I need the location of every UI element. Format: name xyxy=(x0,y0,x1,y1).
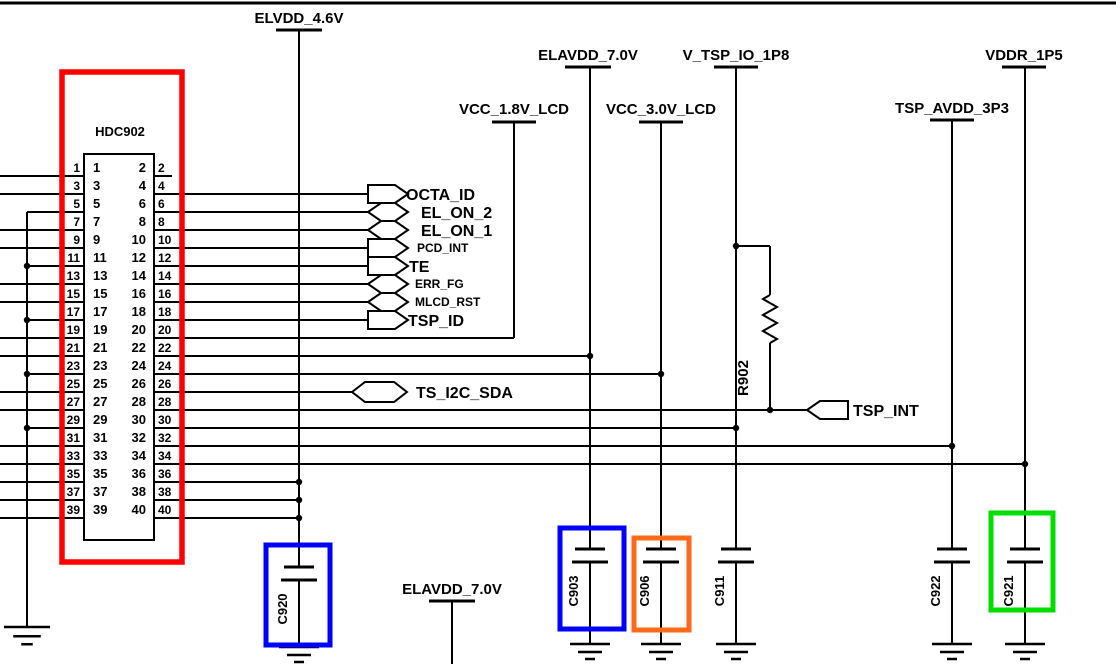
pin-number-outer-left: 3 xyxy=(73,179,80,193)
pin-number-inner-left: 27 xyxy=(93,394,107,409)
pin-number-outer-left: 19 xyxy=(67,323,81,337)
signal-label: PCD_INT xyxy=(417,241,469,255)
pin-number-outer-left: 1 xyxy=(73,161,80,175)
pin-number-outer-left: 9 xyxy=(73,233,80,247)
pin-number-outer-right: 26 xyxy=(158,377,172,391)
power-net-label: VCC_3.0V_LCD xyxy=(606,101,716,118)
pin-number-inner-right: 38 xyxy=(132,484,146,499)
pin-number-outer-right: 30 xyxy=(158,413,172,427)
resistor-label: R902 xyxy=(735,360,752,396)
pin-number-inner-left: 19 xyxy=(93,322,107,337)
pin-number-outer-right: 36 xyxy=(158,467,172,481)
power-net-label: ELAVDD_7.0V xyxy=(402,581,502,598)
capacitor-label: C922 xyxy=(928,575,943,606)
capacitor-label: C921 xyxy=(1001,575,1016,606)
pin-number-inner-right: 32 xyxy=(132,430,146,445)
pin-number-outer-left: 29 xyxy=(67,413,81,427)
junction-dot xyxy=(24,263,30,269)
pin-number-inner-right: 24 xyxy=(132,358,147,373)
pin-number-inner-right: 30 xyxy=(132,412,146,427)
junction-dot xyxy=(587,353,593,359)
capacitor-label: C903 xyxy=(566,575,581,606)
pin-number-outer-right: 34 xyxy=(158,449,172,463)
pin-number-inner-left: 3 xyxy=(93,178,100,193)
junction-dot xyxy=(949,443,955,449)
junction-dot xyxy=(767,407,773,413)
pin-number-inner-left: 1 xyxy=(93,160,100,175)
pin-number-inner-left: 13 xyxy=(93,268,107,283)
pin-number-inner-right: 26 xyxy=(132,376,146,391)
pin-number-outer-right: 2 xyxy=(158,161,165,175)
signal-label: ERR_FG xyxy=(415,277,464,291)
junction-dot xyxy=(733,425,739,431)
pin-number-inner-right: 10 xyxy=(132,232,146,247)
pin-number-inner-left: 39 xyxy=(93,502,107,517)
power-net-label: TSP_AVDD_3P3 xyxy=(895,100,1009,117)
pin-number-outer-right: 10 xyxy=(158,233,172,247)
capacitor-label: C920 xyxy=(275,593,290,624)
power-net-label: VCC_1.8V_LCD xyxy=(459,101,569,118)
pin-number-outer-right: 38 xyxy=(158,485,172,499)
pin-number-inner-right: 22 xyxy=(132,340,146,355)
pin-number-inner-left: 5 xyxy=(93,196,100,211)
pin-number-inner-left: 31 xyxy=(93,430,107,445)
junction-dot xyxy=(658,371,664,377)
pin-number-inner-left: 7 xyxy=(93,214,100,229)
pin-number-outer-right: 14 xyxy=(158,269,172,283)
pin-number-outer-left: 11 xyxy=(67,251,80,265)
signal-label: OCTA_ID xyxy=(406,187,475,204)
pin-number-outer-right: 18 xyxy=(158,305,172,319)
pin-number-inner-left: 37 xyxy=(93,484,107,499)
pin-number-outer-left: 7 xyxy=(73,215,80,229)
junction-dot xyxy=(24,371,30,377)
pin-number-inner-left: 25 xyxy=(93,376,107,391)
signal-label: TE xyxy=(409,259,430,276)
pin-number-inner-right: 4 xyxy=(139,178,147,193)
signal-label: MLCD_RST xyxy=(415,295,481,309)
pin-number-inner-left: 9 xyxy=(93,232,100,247)
pin-number-inner-right: 14 xyxy=(132,268,147,283)
pin-number-outer-left: 27 xyxy=(67,395,81,409)
power-net-label: ELAVDD_7.0V xyxy=(538,47,638,64)
pin-number-inner-right: 28 xyxy=(132,394,146,409)
pin-number-inner-right: 6 xyxy=(139,196,146,211)
connector-refdes: HDC902 xyxy=(95,124,145,139)
pin-number-inner-left: 11 xyxy=(93,250,107,265)
junction-dot xyxy=(24,425,30,431)
pin-number-outer-left: 13 xyxy=(67,269,81,283)
pin-number-outer-left: 25 xyxy=(67,377,81,391)
pin-number-outer-left: 15 xyxy=(67,287,81,301)
pin-number-outer-left: 17 xyxy=(67,305,81,319)
signal-label: EL_ON_2 xyxy=(421,205,492,222)
pin-number-inner-right: 18 xyxy=(132,304,146,319)
pin-number-outer-left: 39 xyxy=(67,503,81,517)
junction-dot xyxy=(1022,461,1028,467)
pin-number-outer-left: 5 xyxy=(73,197,80,211)
pin-number-inner-right: 34 xyxy=(132,448,147,463)
pin-number-inner-left: 23 xyxy=(93,358,107,373)
pin-number-outer-left: 31 xyxy=(67,431,81,445)
pin-number-outer-right: 4 xyxy=(158,179,165,193)
pin-number-outer-left: 21 xyxy=(67,341,81,355)
pin-number-outer-right: 16 xyxy=(158,287,172,301)
pin-number-inner-left: 29 xyxy=(93,412,107,427)
pin-number-inner-left: 21 xyxy=(93,340,107,355)
pin-number-outer-right: 28 xyxy=(158,395,172,409)
pin-number-inner-right: 16 xyxy=(132,286,146,301)
junction-dot xyxy=(733,243,739,249)
pin-number-outer-right: 24 xyxy=(158,359,172,373)
pin-number-inner-left: 33 xyxy=(93,448,107,463)
signal-label: TS_I2C_SDA xyxy=(416,385,513,402)
pin-number-outer-left: 37 xyxy=(67,485,81,499)
pin-number-outer-left: 35 xyxy=(67,467,81,481)
signal-label: TSP_ID xyxy=(408,313,464,330)
pin-number-outer-right: 8 xyxy=(158,215,165,229)
junction-dot xyxy=(296,515,302,521)
pin-number-outer-right: 20 xyxy=(158,323,172,337)
power-net-label: ELVDD_4.6V xyxy=(255,10,344,27)
pin-number-inner-left: 35 xyxy=(93,466,107,481)
pin-number-outer-left: 33 xyxy=(67,449,81,463)
signal-label: TSP_INT xyxy=(853,403,919,420)
pin-number-outer-right: 32 xyxy=(158,431,172,445)
junction-dot xyxy=(296,497,302,503)
flag-TS_I2C_SDA xyxy=(352,382,407,402)
pin-number-outer-right: 22 xyxy=(158,341,172,355)
power-net-label: V_TSP_IO_1P8 xyxy=(683,47,790,64)
pin-number-outer-right: 6 xyxy=(158,197,165,211)
signal-label: EL_ON_1 xyxy=(421,223,492,240)
pin-number-outer-left: 23 xyxy=(67,359,81,373)
pin-number-outer-right: 40 xyxy=(158,503,172,517)
pin-number-inner-right: 40 xyxy=(132,502,146,517)
pin-number-inner-left: 17 xyxy=(93,304,107,319)
pin-number-inner-right: 8 xyxy=(139,214,146,229)
schematic: R902C920C903C906C911C922C921ELVDD_4.6VEL… xyxy=(0,0,1116,664)
schematic-page: R902C920C903C906C911C922C921ELVDD_4.6VEL… xyxy=(0,0,1116,664)
capacitor-label: C911 xyxy=(712,576,727,606)
pin-number-inner-right: 2 xyxy=(139,160,146,175)
pin-number-inner-right: 12 xyxy=(132,250,146,265)
pin-number-inner-right: 36 xyxy=(132,466,146,481)
pin-number-outer-right: 12 xyxy=(158,251,172,265)
power-net-label: VDDR_1P5 xyxy=(985,47,1063,64)
junction-dot xyxy=(296,479,302,485)
capacitor-label: C906 xyxy=(637,575,652,606)
pin-number-inner-left: 15 xyxy=(93,286,107,301)
pin-number-inner-right: 20 xyxy=(132,322,146,337)
junction-dot xyxy=(24,317,30,323)
